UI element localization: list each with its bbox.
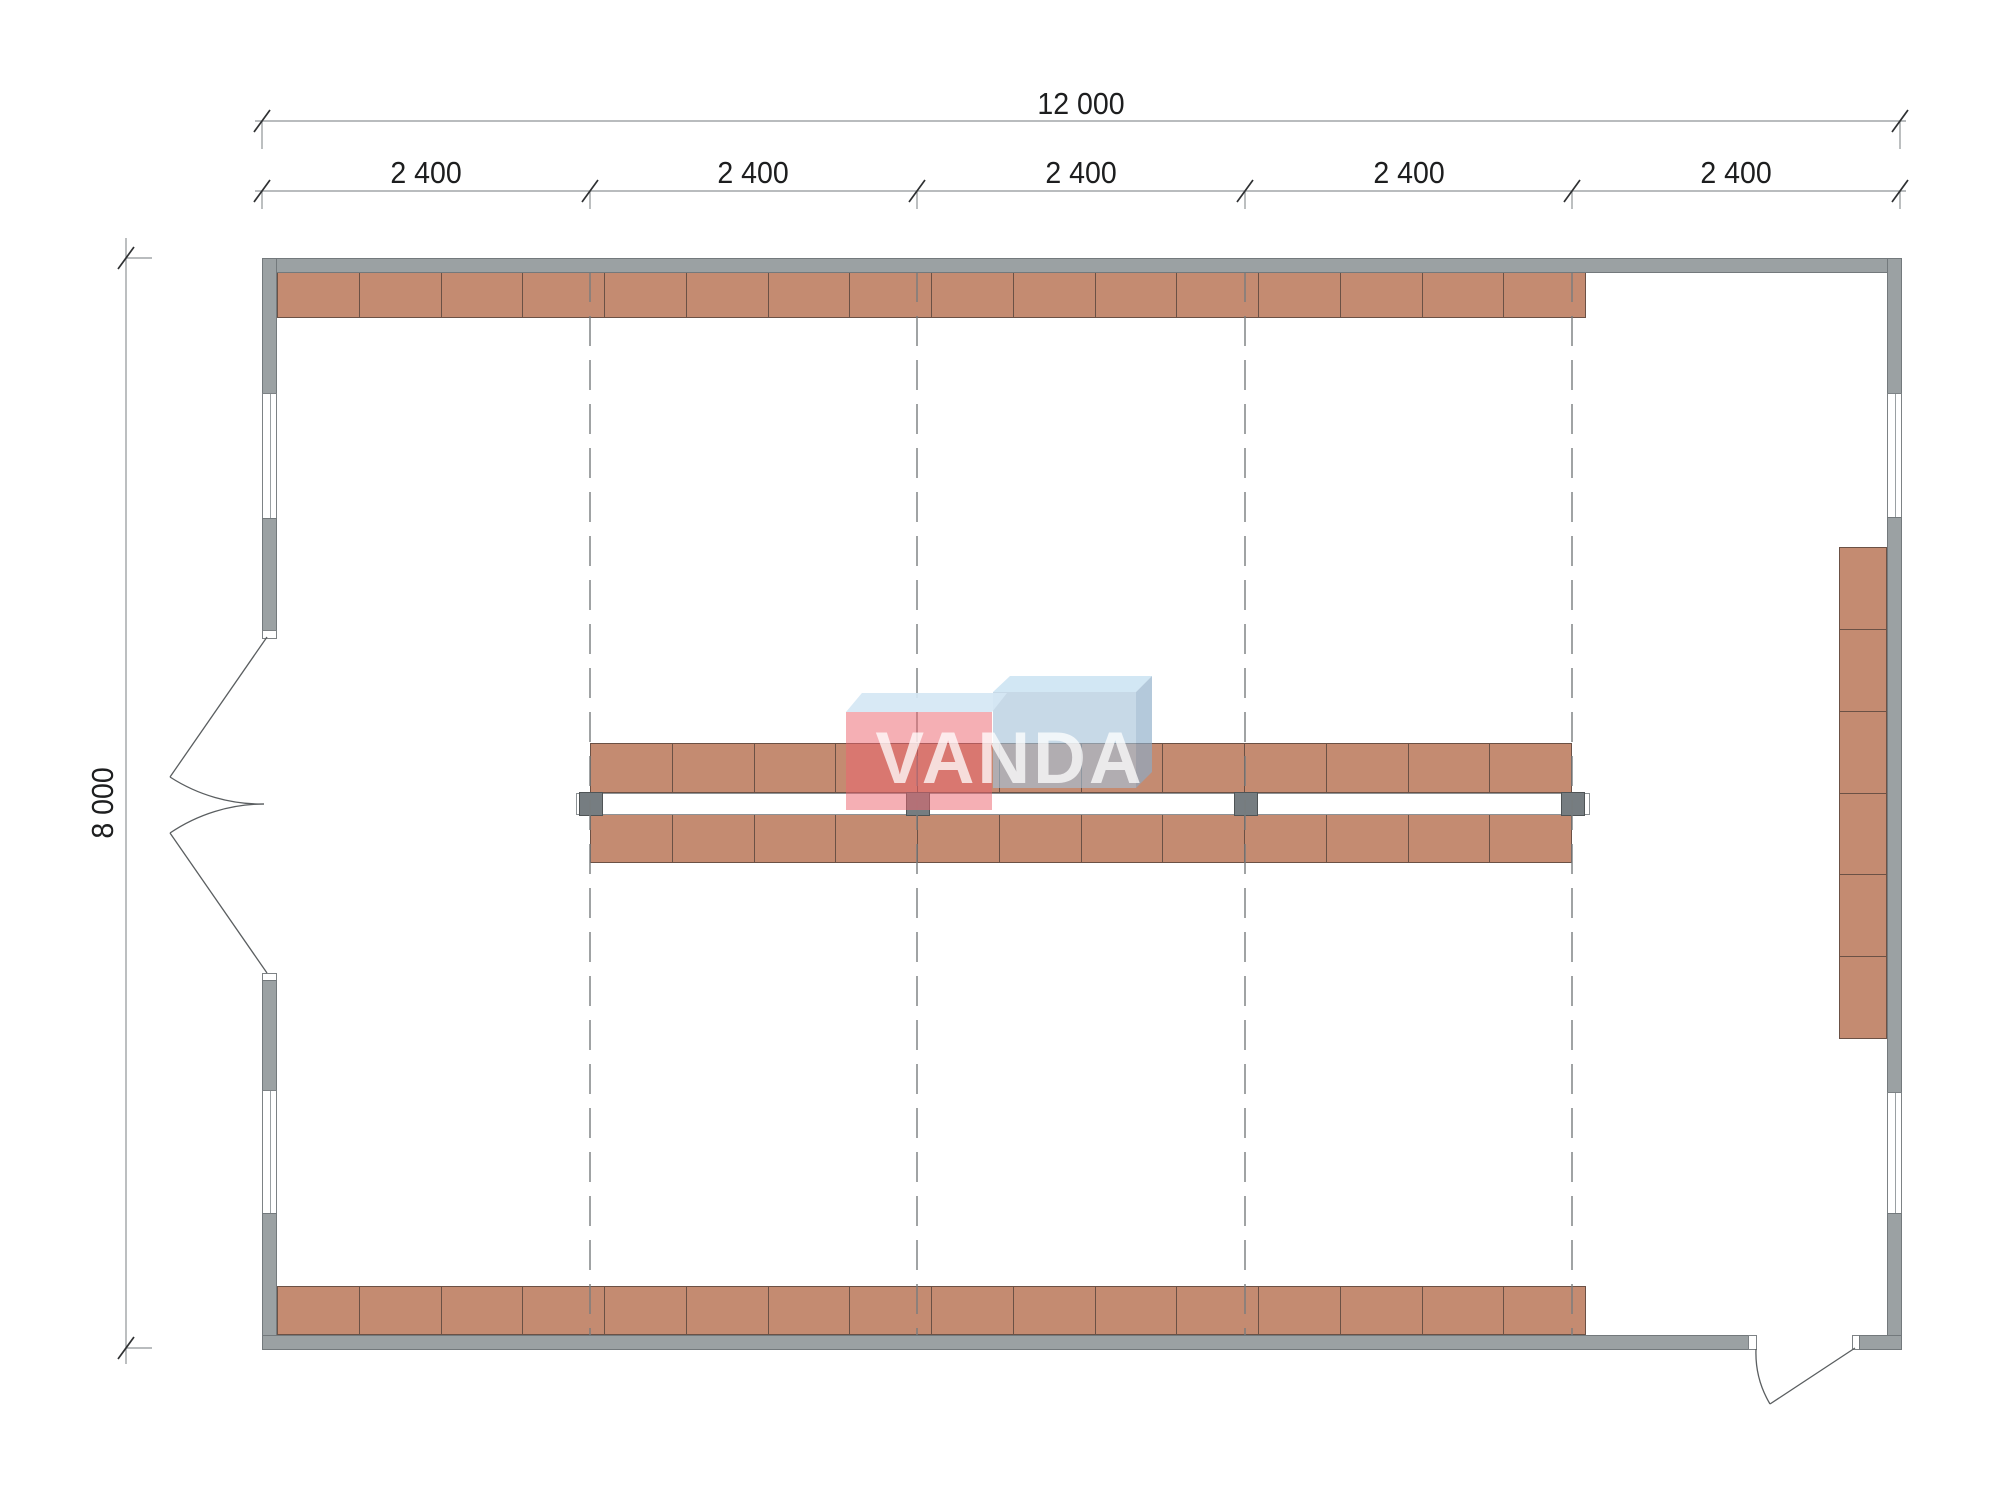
floor-plan-canvas: VANDA (0, 0, 2000, 1488)
dim-segment: 2 400 (1700, 155, 1771, 191)
dim-total-width: 12 000 (1037, 86, 1124, 122)
dim-segment: 2 400 (390, 155, 461, 191)
dim-total-height: 8 000 (85, 767, 121, 838)
dim-segment: 2 400 (1045, 155, 1116, 191)
annotation-lines (0, 0, 2000, 1488)
dim-segment: 2 400 (1373, 155, 1444, 191)
dim-segment: 2 400 (717, 155, 788, 191)
